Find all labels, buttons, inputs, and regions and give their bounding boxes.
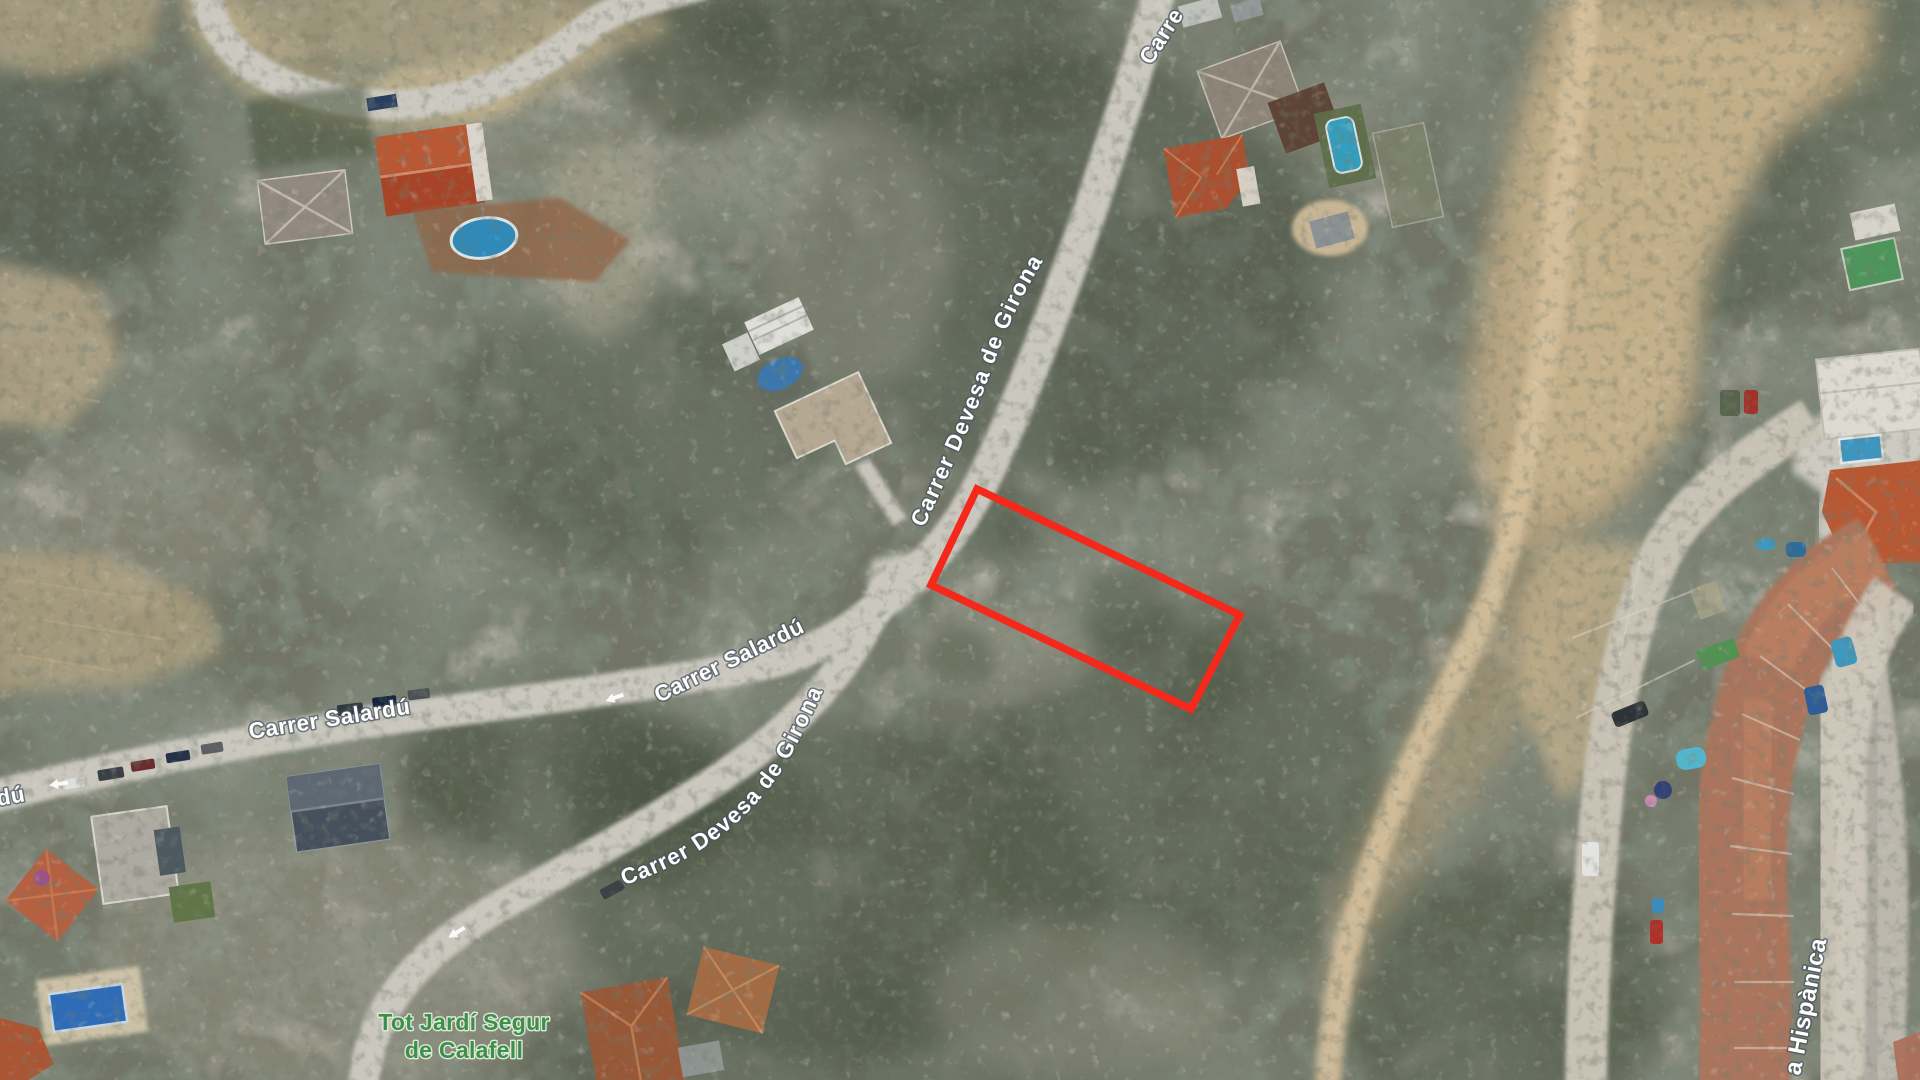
svg-text:Tot Jardí Segur: Tot Jardí Segur	[378, 1009, 550, 1035]
svg-text:de Calafell: de Calafell	[405, 1037, 523, 1063]
svg-text:dú: dú	[0, 781, 27, 811]
